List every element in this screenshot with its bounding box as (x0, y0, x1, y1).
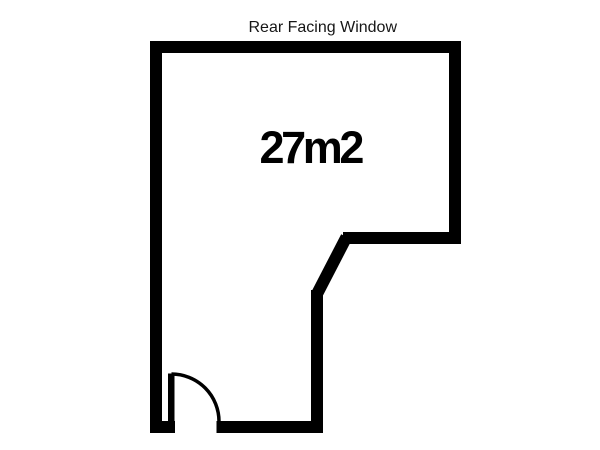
svg-text:Rear Facing Window: Rear Facing Window (249, 19, 398, 36)
svg-text:27m2: 27m2 (260, 122, 364, 173)
